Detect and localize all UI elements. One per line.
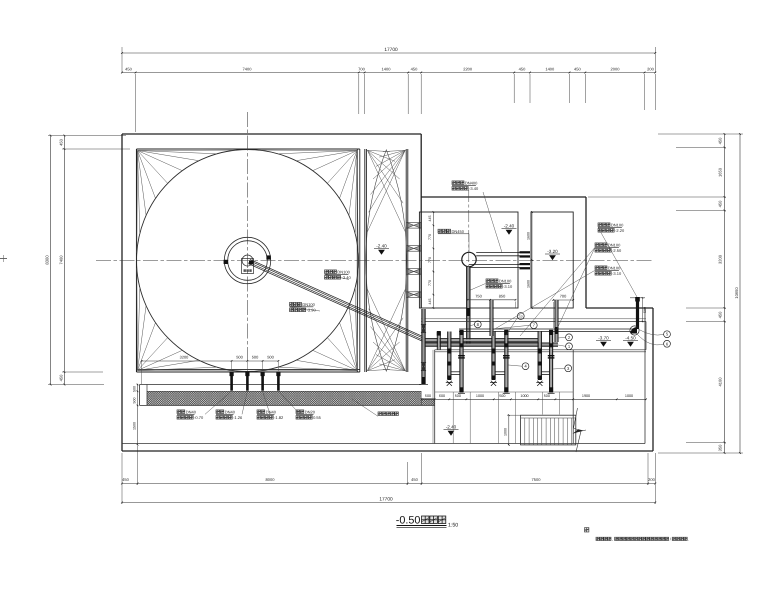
svg-text:-3.40: -3.40: [342, 275, 352, 280]
svg-text:-3.20: -3.20: [547, 249, 558, 254]
svg-text:450: 450: [411, 477, 418, 482]
svg-text:DN40: DN40: [266, 410, 277, 415]
svg-text:3200: 3200: [180, 355, 189, 360]
svg-text:7400: 7400: [58, 255, 63, 265]
svg-text:350: 350: [718, 444, 723, 451]
svg-text:1600: 1600: [526, 280, 530, 288]
svg-text:500: 500: [252, 355, 259, 360]
svg-text:DN100: DN100: [608, 266, 621, 271]
svg-text:-3.10: -3.10: [503, 284, 513, 289]
svg-text:-2.40: -2.40: [446, 425, 457, 430]
svg-text:445: 445: [428, 216, 432, 222]
svg-text:1600: 1600: [526, 232, 530, 240]
svg-text:200: 200: [647, 66, 654, 71]
svg-text:600: 600: [439, 394, 445, 398]
svg-text:1:50: 1:50: [448, 523, 458, 529]
svg-text:1900: 1900: [582, 394, 590, 398]
svg-text:450: 450: [574, 66, 581, 71]
svg-text:1400: 1400: [545, 66, 555, 71]
svg-text:450: 450: [718, 137, 723, 144]
svg-text:-2.40: -2.40: [376, 244, 387, 249]
svg-text:770: 770: [428, 234, 432, 240]
svg-text:DN40: DN40: [186, 410, 197, 415]
svg-text:10: 10: [519, 315, 523, 319]
svg-text:1000: 1000: [625, 394, 633, 398]
svg-text:-4.50: -4.50: [625, 336, 636, 341]
svg-text:-0.50: -0.50: [396, 515, 421, 527]
svg-text:-2.50: -2.50: [612, 248, 622, 253]
svg-text:450: 450: [519, 66, 526, 71]
svg-text:500: 500: [643, 307, 647, 313]
svg-text:-3.70: -3.70: [598, 336, 609, 341]
svg-text:DN100: DN100: [337, 270, 350, 275]
svg-text:8000: 8000: [266, 477, 276, 482]
svg-text:700: 700: [560, 294, 567, 299]
svg-text:750: 750: [475, 293, 482, 298]
svg-text:445: 445: [428, 299, 432, 305]
svg-text:DN100: DN100: [499, 279, 512, 284]
svg-text:850: 850: [499, 293, 506, 298]
svg-text:450: 450: [58, 138, 63, 145]
svg-text:17700: 17700: [384, 47, 398, 53]
svg-text:4100: 4100: [718, 377, 723, 387]
svg-text:,: ,: [612, 537, 613, 542]
svg-text:DN450: DN450: [452, 229, 465, 234]
svg-text:17700: 17700: [379, 497, 393, 503]
svg-text:DN100: DN100: [611, 223, 624, 228]
svg-text:7400: 7400: [243, 66, 253, 71]
svg-text:DN100: DN100: [608, 243, 621, 248]
svg-text:8300: 8300: [45, 255, 50, 265]
svg-text:450: 450: [718, 311, 723, 318]
svg-text:-2.20: -2.20: [615, 228, 625, 233]
svg-text:-1.26: -1.26: [233, 415, 243, 420]
svg-text:10650: 10650: [734, 287, 739, 299]
svg-text:770: 770: [428, 280, 432, 286]
svg-text:1500: 1500: [132, 422, 136, 430]
svg-text:2200: 2200: [463, 66, 473, 71]
svg-text:1000: 1000: [504, 428, 508, 436]
svg-text:-0.70: -0.70: [194, 415, 204, 420]
svg-text:-2.40: -2.40: [504, 224, 515, 229]
svg-text:-3.10: -3.10: [612, 271, 622, 276]
svg-text:500: 500: [132, 398, 136, 404]
svg-text:500: 500: [544, 394, 550, 398]
svg-text:7500: 7500: [532, 477, 542, 482]
svg-text:200: 200: [648, 477, 655, 482]
svg-text:1650: 1650: [718, 167, 723, 177]
svg-text:1000: 1000: [476, 394, 484, 398]
svg-text:1000: 1000: [520, 394, 528, 398]
svg-text:3200: 3200: [718, 254, 723, 264]
svg-text:-1.82: -1.82: [274, 415, 284, 420]
svg-text:500: 500: [267, 355, 274, 360]
svg-text:-3.40: -3.40: [469, 186, 479, 191]
svg-text:450: 450: [122, 477, 129, 482]
svg-text:450: 450: [58, 374, 63, 381]
svg-text:DN400: DN400: [465, 181, 478, 186]
svg-text:450: 450: [411, 66, 418, 71]
svg-text:DN20: DN20: [305, 410, 316, 415]
svg-text:DN100: DN100: [302, 302, 315, 307]
svg-text:DN40: DN40: [225, 410, 236, 415]
svg-text:2000: 2000: [611, 66, 621, 71]
svg-text:770: 770: [428, 257, 432, 263]
svg-text:500: 500: [132, 386, 136, 392]
svg-text:.: .: [688, 537, 689, 542]
svg-text:500: 500: [425, 394, 431, 398]
svg-text:0.55: 0.55: [313, 415, 322, 420]
svg-text:500: 500: [236, 355, 243, 360]
svg-text:700: 700: [358, 66, 365, 71]
svg-text:500: 500: [499, 394, 505, 398]
svg-text:450: 450: [718, 200, 723, 207]
svg-text:500: 500: [455, 394, 461, 398]
svg-text:1400: 1400: [382, 66, 392, 71]
svg-text:450: 450: [125, 66, 132, 71]
